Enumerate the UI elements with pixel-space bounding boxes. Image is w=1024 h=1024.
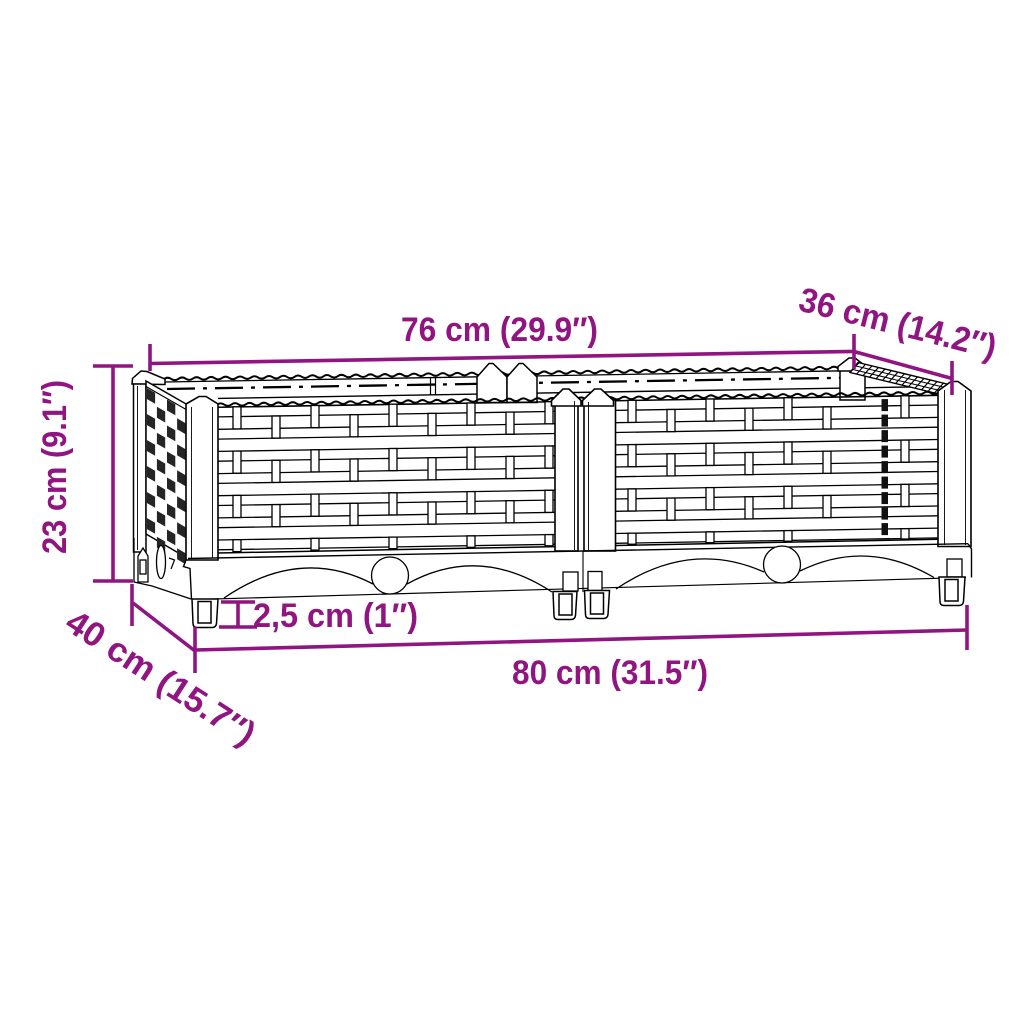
svg-text:2,5 cm (1″): 2,5 cm (1″) [253, 597, 418, 635]
svg-text:23 cm (9.1″): 23 cm (9.1″) [36, 380, 74, 554]
svg-text:80 cm (31.5″): 80 cm (31.5″) [512, 654, 708, 692]
svg-text:76 cm (29.9″): 76 cm (29.9″) [401, 311, 598, 349]
svg-text:36 cm (14.2″): 36 cm (14.2″) [795, 281, 1000, 367]
